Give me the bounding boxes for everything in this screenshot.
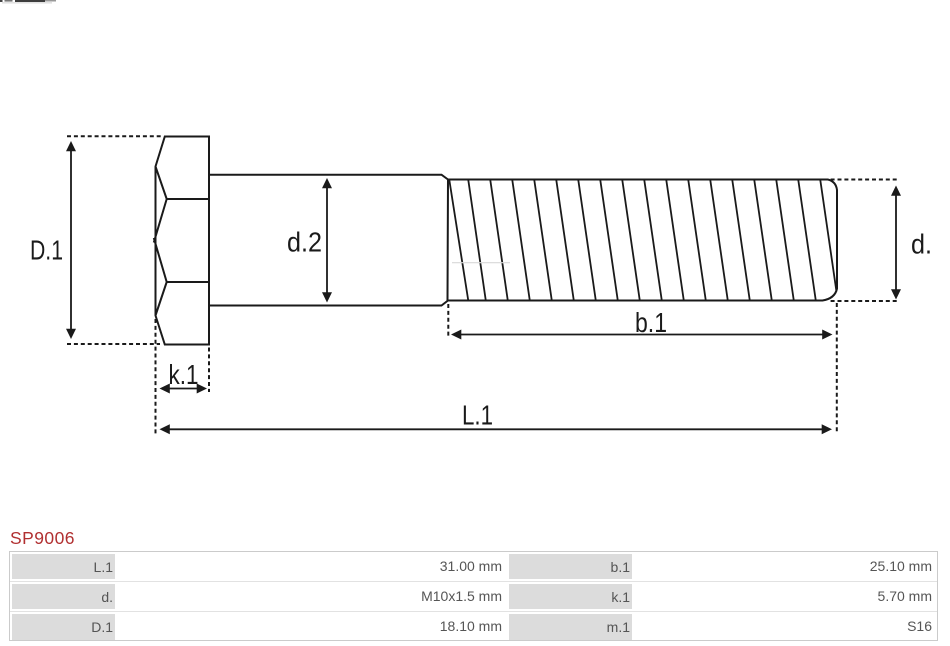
svg-text:k.1: k.1 xyxy=(169,359,199,390)
svg-text:D.1: D.1 xyxy=(30,235,63,266)
svg-text:L.1: L.1 xyxy=(462,400,493,431)
svg-text:d.2: d.2 xyxy=(287,227,322,258)
svg-text:b.1: b.1 xyxy=(635,307,667,338)
svg-text:d.: d. xyxy=(911,229,932,260)
